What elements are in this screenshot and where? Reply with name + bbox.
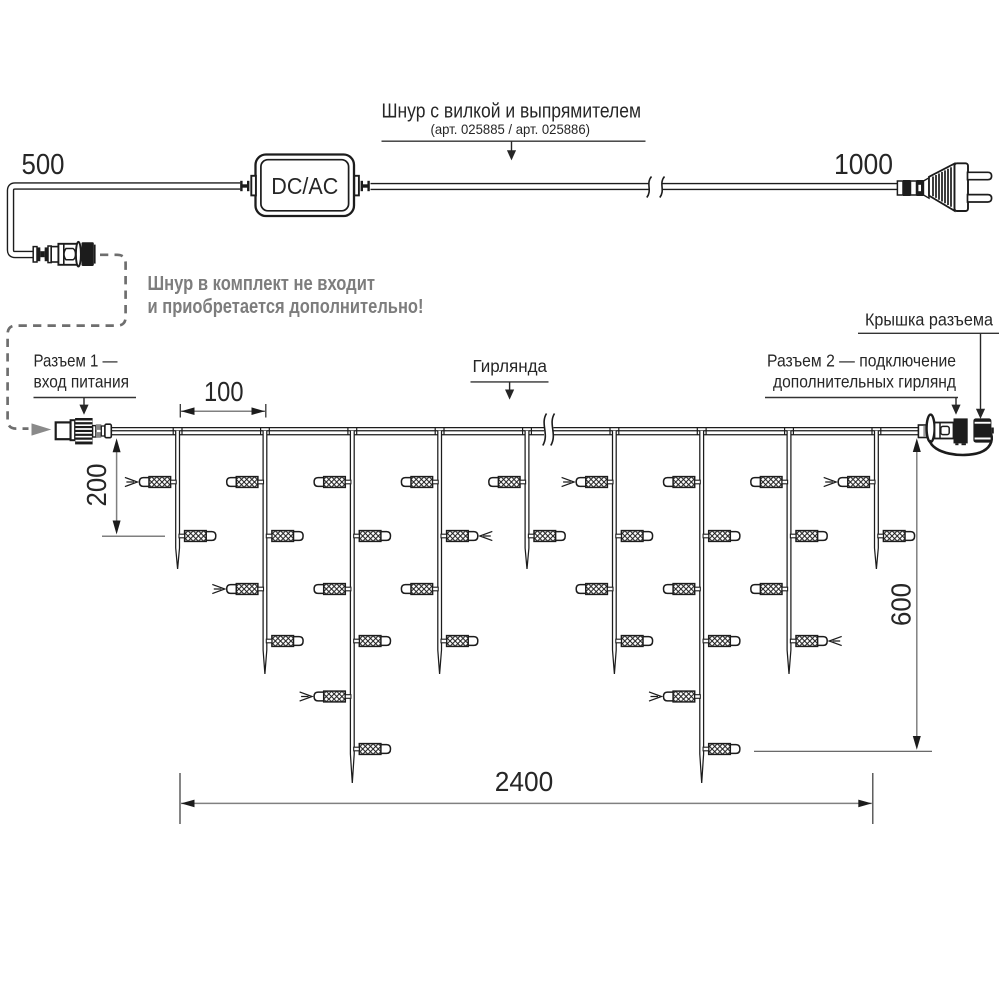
svg-text:2400: 2400 [495, 766, 554, 797]
svg-text:Шнур в комплект не входит: Шнур в комплект не входит [148, 272, 376, 295]
svg-text:Шнур с вилкой и выпрямителем: Шнур с вилкой и выпрямителем [382, 99, 642, 122]
svg-text:Разъем 1 —: Разъем 1 — [34, 350, 118, 370]
svg-text:500: 500 [22, 149, 65, 181]
svg-text:и приобретается дополнительно!: и приобретается дополнительно! [148, 295, 424, 318]
svg-text:DC/AC: DC/AC [271, 173, 338, 199]
svg-text:100: 100 [204, 376, 244, 407]
svg-text:Разъем 2 — подключение: Разъем 2 — подключение [767, 350, 956, 370]
svg-text:200: 200 [81, 464, 112, 507]
svg-text:(арт. 025885 / арт. 025886): (арт. 025885 / арт. 025886) [431, 121, 591, 137]
svg-text:600: 600 [886, 583, 917, 626]
svg-text:1000: 1000 [834, 149, 893, 181]
svg-text:Крышка разъема: Крышка разъема [865, 309, 993, 329]
svg-text:вход питания: вход питания [34, 371, 130, 391]
svg-text:дополнительных гирлянд: дополнительных гирлянд [773, 371, 956, 391]
svg-text:Гирлянда: Гирлянда [473, 356, 548, 376]
